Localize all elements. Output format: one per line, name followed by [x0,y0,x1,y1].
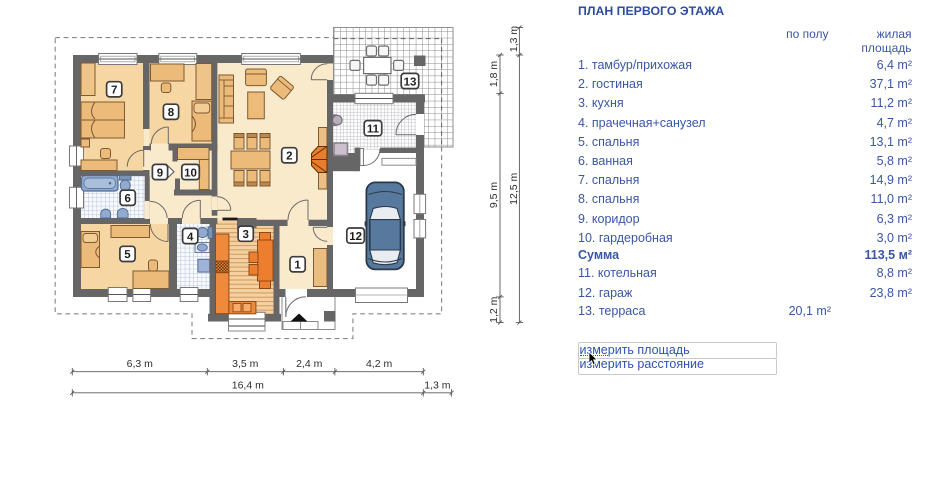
svg-text:1,8 m: 1,8 m [488,61,500,88]
svg-text:1,3 m: 1,3 m [424,379,451,391]
svg-text:12: 12 [349,231,362,243]
svg-text:1: 1 [294,260,301,272]
svg-text:1,3 m: 1,3 m [508,26,520,53]
svg-text:4,2 m: 4,2 m [366,358,393,370]
svg-text:4: 4 [187,231,194,243]
svg-text:7: 7 [111,85,117,97]
svg-text:2,4 m: 2,4 m [296,358,323,370]
svg-text:3: 3 [242,229,248,241]
svg-text:6: 6 [124,193,130,205]
svg-text:13: 13 [404,76,417,88]
svg-text:9: 9 [157,167,163,179]
svg-text:5: 5 [124,249,131,261]
svg-text:6,3 m: 6,3 m [127,358,154,370]
svg-text:2: 2 [286,151,292,163]
svg-text:16,4 m: 16,4 m [232,379,264,391]
svg-text:9,5 m: 9,5 m [488,182,500,209]
svg-text:11: 11 [367,124,380,136]
svg-text:3,5 m: 3,5 m [232,358,259,370]
svg-text:10: 10 [184,167,197,179]
svg-text:1,2 m: 1,2 m [488,296,500,323]
svg-text:8: 8 [168,107,175,119]
svg-text:12,5 m: 12,5 m [508,173,520,205]
